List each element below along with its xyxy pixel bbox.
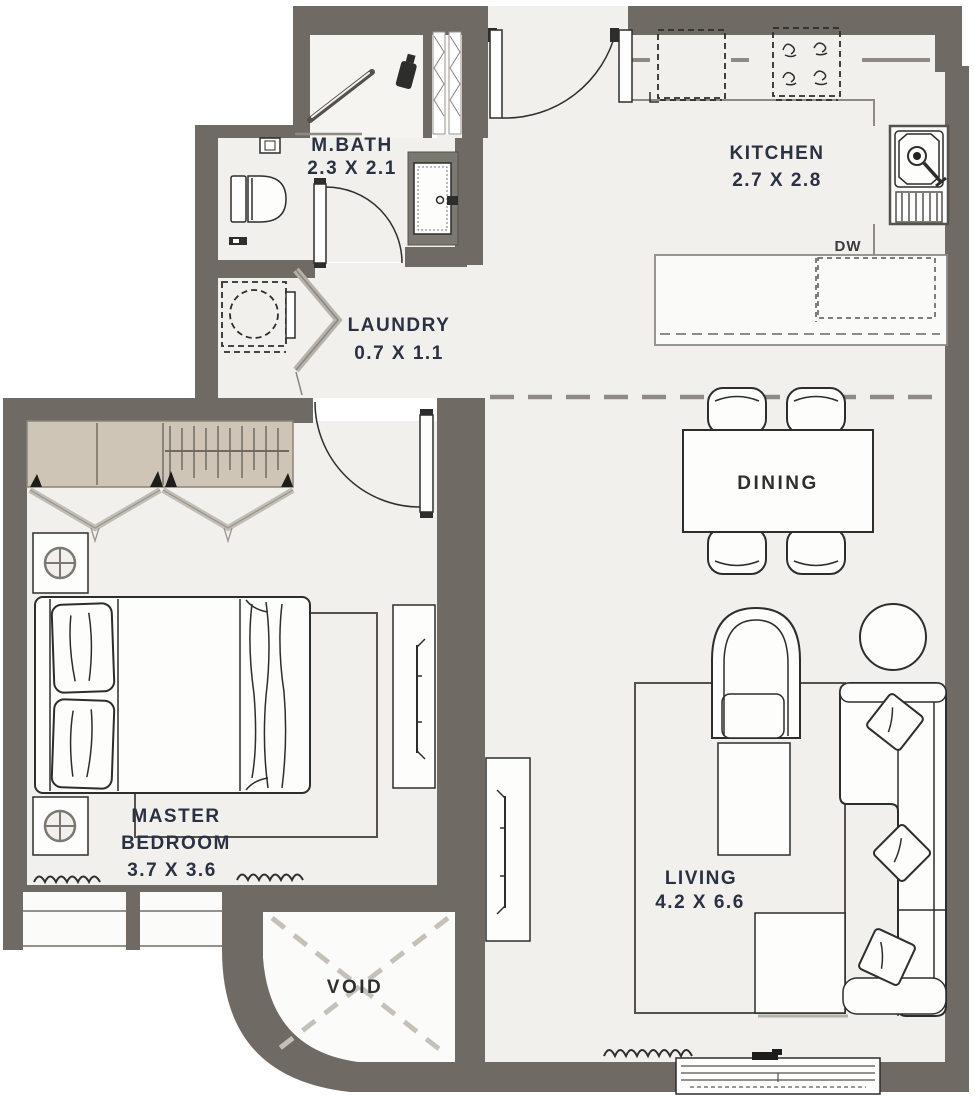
- master-bedroom-label-2: BEDROOM: [121, 833, 231, 854]
- bedroom-tv-unit: [393, 605, 435, 788]
- dining-label: DINING: [737, 473, 819, 494]
- nightstand: [33, 797, 88, 855]
- kitchen-label: KITCHEN: [730, 143, 825, 164]
- laundry-dims: 0.7 X 1.1: [354, 343, 444, 364]
- void-label: VOID: [327, 977, 383, 998]
- dining-chair: [708, 528, 766, 574]
- coffee-table: [718, 743, 790, 855]
- dining-chair: [708, 388, 766, 434]
- bedroom-window: [3, 892, 222, 950]
- living-tv-unit: [486, 758, 530, 941]
- laundry-label: LAUNDRY: [348, 315, 451, 336]
- armchair: [712, 608, 800, 738]
- master-bedroom-label-1: MASTER: [131, 806, 220, 827]
- kitchen-dims: 2.7 X 2.8: [732, 170, 822, 191]
- living-dims: 4.2 X 6.6: [655, 892, 745, 913]
- side-table: [860, 604, 926, 670]
- floor-plan-canvas: M.BATH 2.3 X 2.1 LAUNDRY 0.7 X 1.1 KITCH…: [0, 0, 977, 1100]
- end-table: [755, 913, 845, 1013]
- dining-chair: [787, 528, 845, 574]
- kitchen-sink-icon: [890, 126, 948, 224]
- floor-plan-drawing: M.BATH 2.3 X 2.1 LAUNDRY 0.7 X 1.1 KITCH…: [0, 0, 977, 1100]
- pillow: [51, 699, 114, 789]
- bed: [35, 597, 310, 793]
- pillow: [51, 603, 114, 693]
- nightstand: [33, 533, 88, 593]
- mbath-dims: 2.3 X 2.1: [307, 158, 397, 179]
- mbath-label: M.BATH: [311, 135, 392, 156]
- dishwasher-label: DW: [835, 238, 862, 255]
- dining-chair: [787, 388, 845, 434]
- vanity-sink-icon: [408, 152, 458, 245]
- kitchen-island: [655, 255, 947, 345]
- living-label: LIVING: [665, 868, 737, 889]
- master-bedroom-dims: 3.7 X 3.6: [127, 860, 217, 881]
- entry-opening: [486, 6, 630, 35]
